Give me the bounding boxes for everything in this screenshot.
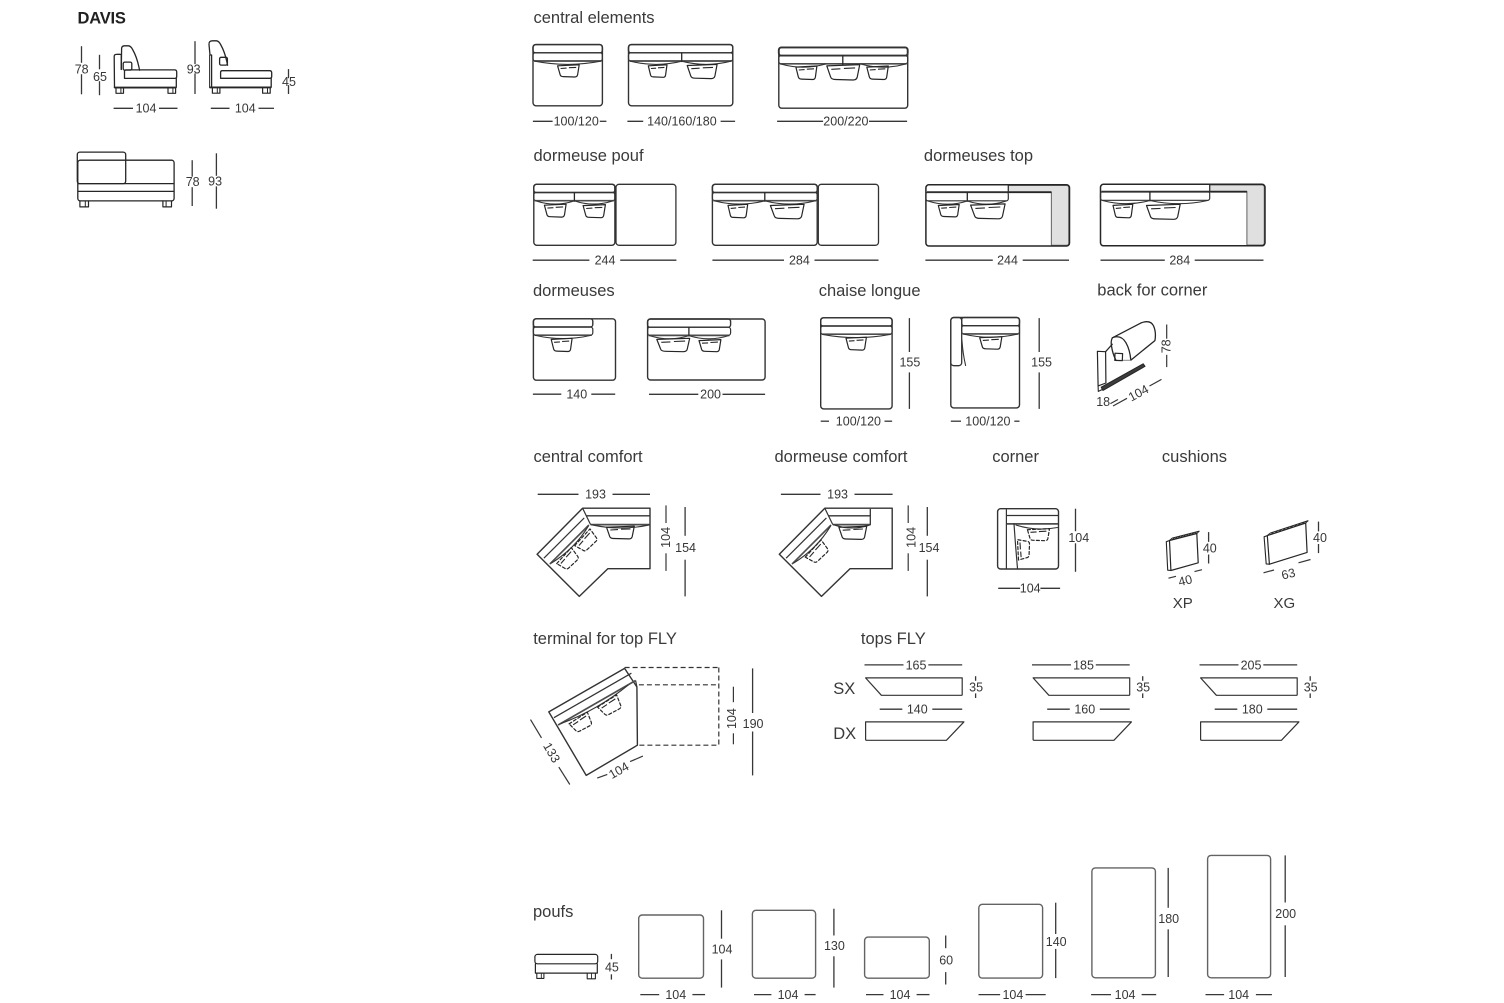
svg-text:180: 180: [1242, 703, 1263, 717]
svg-text:100/120: 100/120: [836, 415, 881, 429]
svg-text:chaise longue: chaise longue: [819, 282, 921, 300]
svg-text:poufs: poufs: [533, 903, 573, 921]
svg-text:130: 130: [824, 939, 845, 953]
svg-text:78: 78: [1160, 339, 1174, 353]
svg-text:104: 104: [890, 988, 911, 1002]
svg-text:140: 140: [566, 388, 587, 402]
svg-text:104: 104: [778, 988, 799, 1002]
svg-text:154: 154: [919, 541, 940, 555]
svg-text:104: 104: [665, 988, 686, 1002]
svg-text:dormeuses: dormeuses: [533, 282, 615, 300]
svg-text:78: 78: [75, 63, 89, 77]
svg-text:DX: DX: [833, 725, 856, 743]
svg-text:104: 104: [136, 102, 157, 116]
svg-text:190: 190: [743, 717, 764, 731]
svg-text:200: 200: [700, 388, 721, 402]
svg-text:104: 104: [1002, 988, 1023, 1002]
svg-text:284: 284: [1169, 254, 1190, 268]
svg-text:284: 284: [789, 254, 810, 268]
svg-text:93: 93: [208, 174, 222, 188]
svg-text:104: 104: [725, 708, 739, 729]
svg-text:160: 160: [1074, 703, 1095, 717]
svg-text:200/220: 200/220: [823, 115, 868, 129]
svg-text:corner: corner: [992, 448, 1039, 466]
svg-text:18: 18: [1096, 395, 1110, 409]
svg-text:central comfort: central comfort: [534, 448, 644, 466]
svg-text:dormeuses top: dormeuses top: [924, 147, 1033, 165]
svg-text:104: 104: [1228, 988, 1249, 1002]
svg-text:40: 40: [1313, 531, 1327, 545]
svg-text:SX: SX: [833, 680, 855, 698]
svg-text:193: 193: [585, 488, 606, 502]
svg-text:140: 140: [907, 703, 928, 717]
svg-text:244: 244: [595, 254, 616, 268]
svg-text:XP: XP: [1173, 595, 1193, 612]
svg-text:60: 60: [939, 953, 953, 967]
svg-text:back for corner: back for corner: [1097, 281, 1208, 299]
svg-text:central elements: central elements: [534, 9, 655, 27]
svg-text:104: 104: [659, 527, 673, 548]
svg-text:100/120: 100/120: [554, 115, 599, 129]
svg-text:40: 40: [1203, 542, 1217, 556]
svg-text:78: 78: [186, 175, 200, 189]
svg-text:244: 244: [997, 254, 1018, 268]
svg-text:205: 205: [1241, 658, 1262, 672]
svg-text:104: 104: [904, 527, 918, 548]
svg-text:tops FLY: tops FLY: [861, 630, 926, 648]
svg-text:185: 185: [1073, 658, 1094, 672]
svg-text:154: 154: [675, 541, 696, 555]
svg-text:104: 104: [712, 942, 733, 956]
svg-text:35: 35: [1136, 681, 1150, 695]
svg-text:terminal for top FLY: terminal for top FLY: [533, 630, 677, 648]
svg-text:35: 35: [969, 681, 983, 695]
svg-text:dormeuse comfort: dormeuse comfort: [775, 448, 908, 466]
svg-text:140: 140: [1046, 935, 1067, 949]
svg-text:104: 104: [1115, 988, 1136, 1002]
svg-text:cushions: cushions: [1162, 448, 1227, 466]
svg-text:104: 104: [235, 102, 256, 116]
svg-text:155: 155: [899, 356, 920, 370]
svg-text:200: 200: [1275, 907, 1296, 921]
svg-text:XG: XG: [1274, 595, 1296, 612]
svg-text:155: 155: [1031, 356, 1052, 370]
svg-text:165: 165: [906, 658, 927, 672]
svg-text:100/120: 100/120: [965, 415, 1010, 429]
svg-text:35: 35: [1304, 681, 1318, 695]
svg-text:104: 104: [1020, 582, 1041, 596]
svg-text:65: 65: [93, 70, 107, 84]
svg-text:104: 104: [1068, 531, 1089, 545]
svg-text:93: 93: [187, 62, 201, 76]
svg-text:193: 193: [827, 488, 848, 502]
svg-text:45: 45: [605, 960, 619, 974]
svg-text:45: 45: [282, 75, 296, 89]
svg-text:DAVIS: DAVIS: [78, 10, 126, 28]
svg-text:180: 180: [1158, 912, 1179, 926]
svg-text:140/160/180: 140/160/180: [647, 115, 717, 129]
svg-text:dormeuse pouf: dormeuse pouf: [534, 147, 644, 165]
